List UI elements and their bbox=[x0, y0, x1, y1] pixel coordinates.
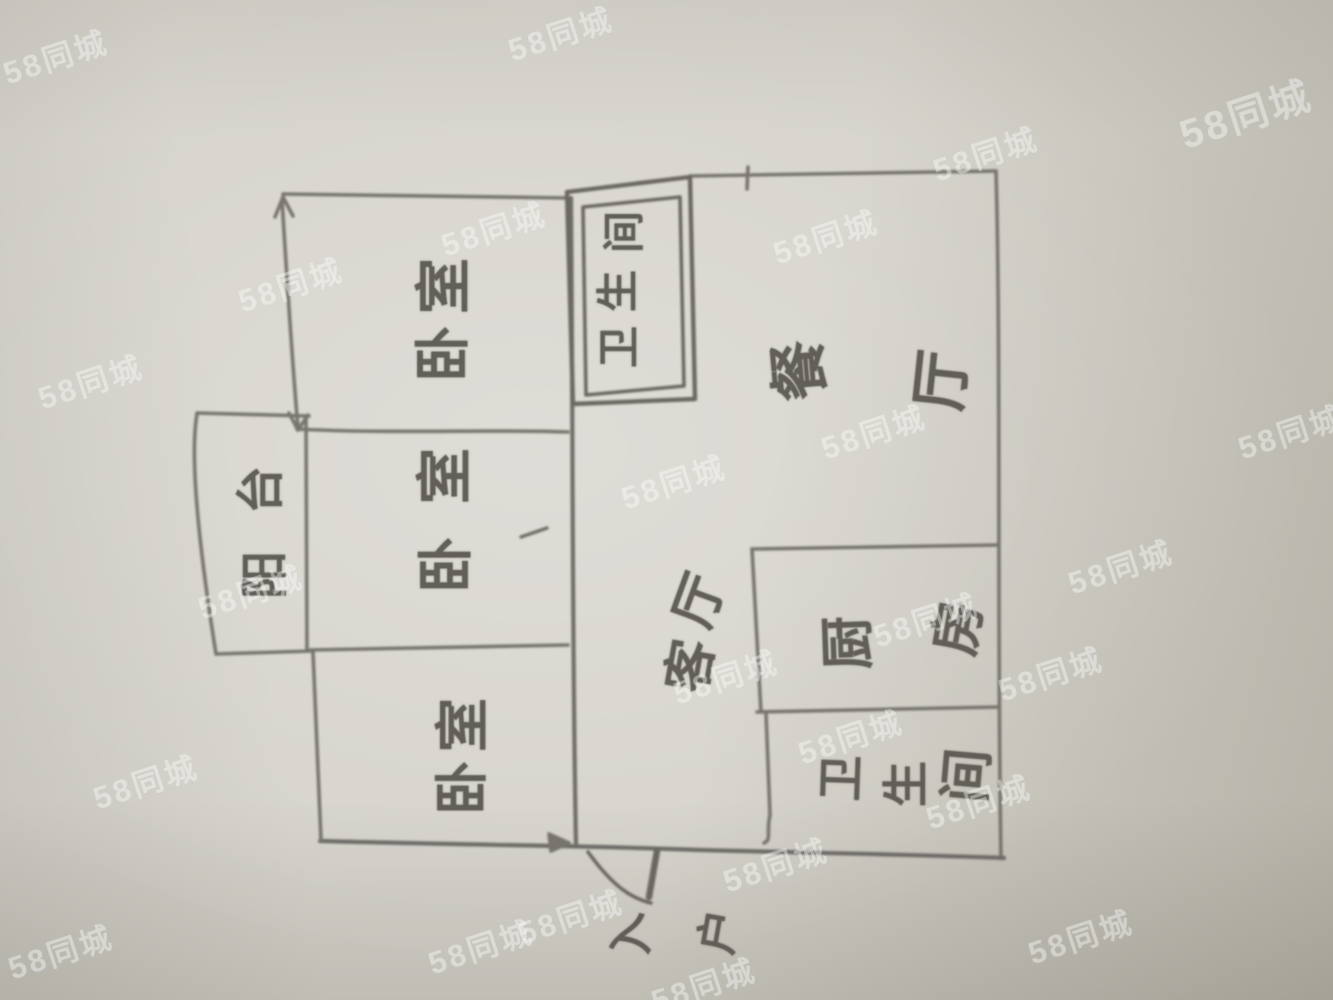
floorplan-photo: 卧室卧室卧室阳台卫生间餐厅客厅厨房卫生间入户 58同城58同城58同城58同城5… bbox=[0, 0, 1333, 1000]
entry-door bbox=[588, 851, 657, 903]
outer-walls bbox=[283, 167, 1004, 858]
door-swing-arc bbox=[588, 852, 651, 903]
bathroom-top-box bbox=[567, 177, 695, 404]
door-leaf bbox=[649, 851, 657, 897]
right-wing-walls bbox=[752, 545, 999, 843]
left-wing-walls bbox=[194, 197, 569, 851]
floorplan-sketch bbox=[0, 0, 1333, 1000]
dimension-arrow bbox=[549, 834, 569, 851]
